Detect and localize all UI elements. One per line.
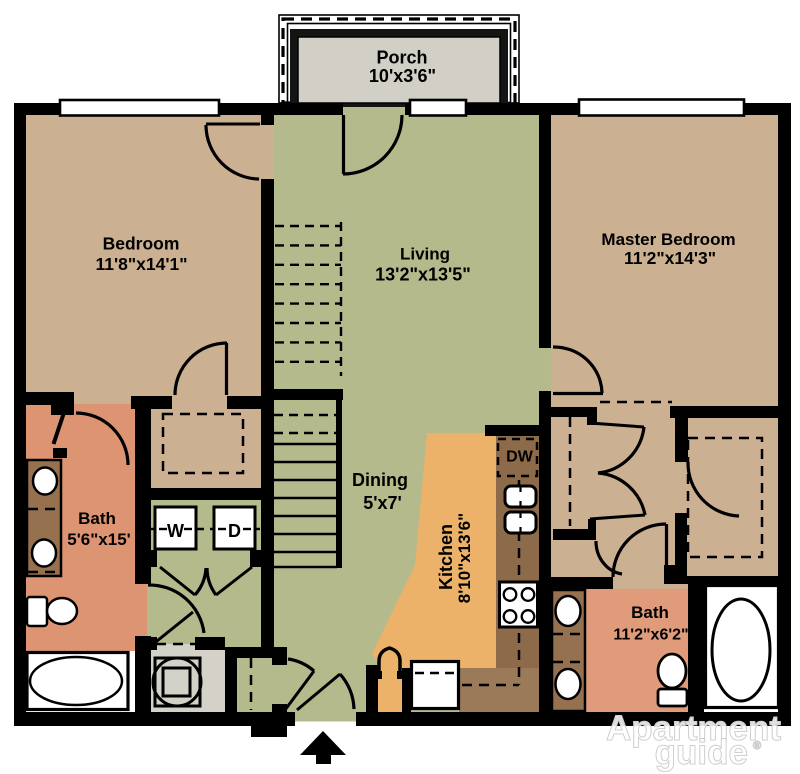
svg-text:8'10"x13'6": 8'10"x13'6" (455, 513, 474, 603)
svg-text:DW: DW (506, 449, 534, 466)
svg-text:Porch: Porch (376, 48, 427, 68)
svg-text:11'2"x14'3": 11'2"x14'3" (624, 248, 716, 268)
svg-text:Bath: Bath (631, 603, 669, 622)
svg-text:Bath: Bath (78, 509, 116, 528)
svg-text:Dining: Dining (352, 470, 408, 490)
svg-text:11'2"x6'2": 11'2"x6'2" (613, 627, 688, 644)
svg-text:11'8"x14'1": 11'8"x14'1" (95, 254, 187, 274)
svg-text:Master Bedroom: Master Bedroom (601, 230, 735, 249)
svg-text:Kitchen: Kitchen (436, 524, 456, 590)
svg-text:D: D (228, 521, 241, 541)
svg-text:13'2"x13'5": 13'2"x13'5" (375, 265, 471, 285)
svg-text:guide: guide (655, 733, 748, 772)
svg-text:Bedroom: Bedroom (103, 234, 180, 254)
svg-text:5'x7': 5'x7' (363, 493, 402, 513)
svg-text:W: W (167, 521, 184, 541)
svg-text:5'6"x15': 5'6"x15' (67, 530, 130, 549)
svg-text:10'x3'6": 10'x3'6" (369, 66, 436, 86)
svg-text:Living: Living (400, 245, 450, 264)
svg-text:®: ® (753, 740, 761, 752)
